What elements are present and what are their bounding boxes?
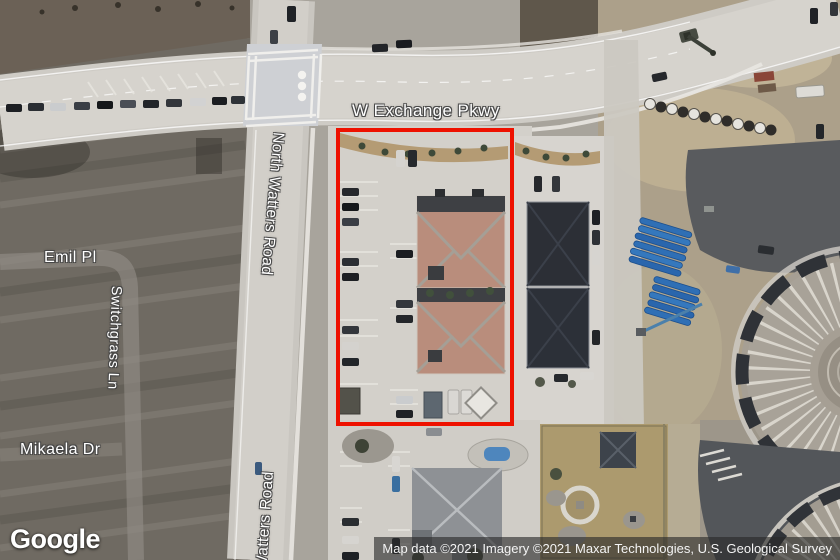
google-logo[interactable]: Google (10, 524, 100, 555)
map-canvas[interactable]: W Exchange Pkwy North Watters Road North… (0, 0, 840, 560)
intersection (243, 44, 322, 126)
satellite-imagery (0, 0, 840, 560)
pool (484, 447, 510, 461)
office-building (417, 189, 505, 374)
attribution-bar: Map data ©2021 Imagery ©2021 Maxar Techn… (374, 537, 840, 560)
attribution-text: Map data ©2021 Imagery ©2021 Maxar Techn… (382, 541, 832, 556)
